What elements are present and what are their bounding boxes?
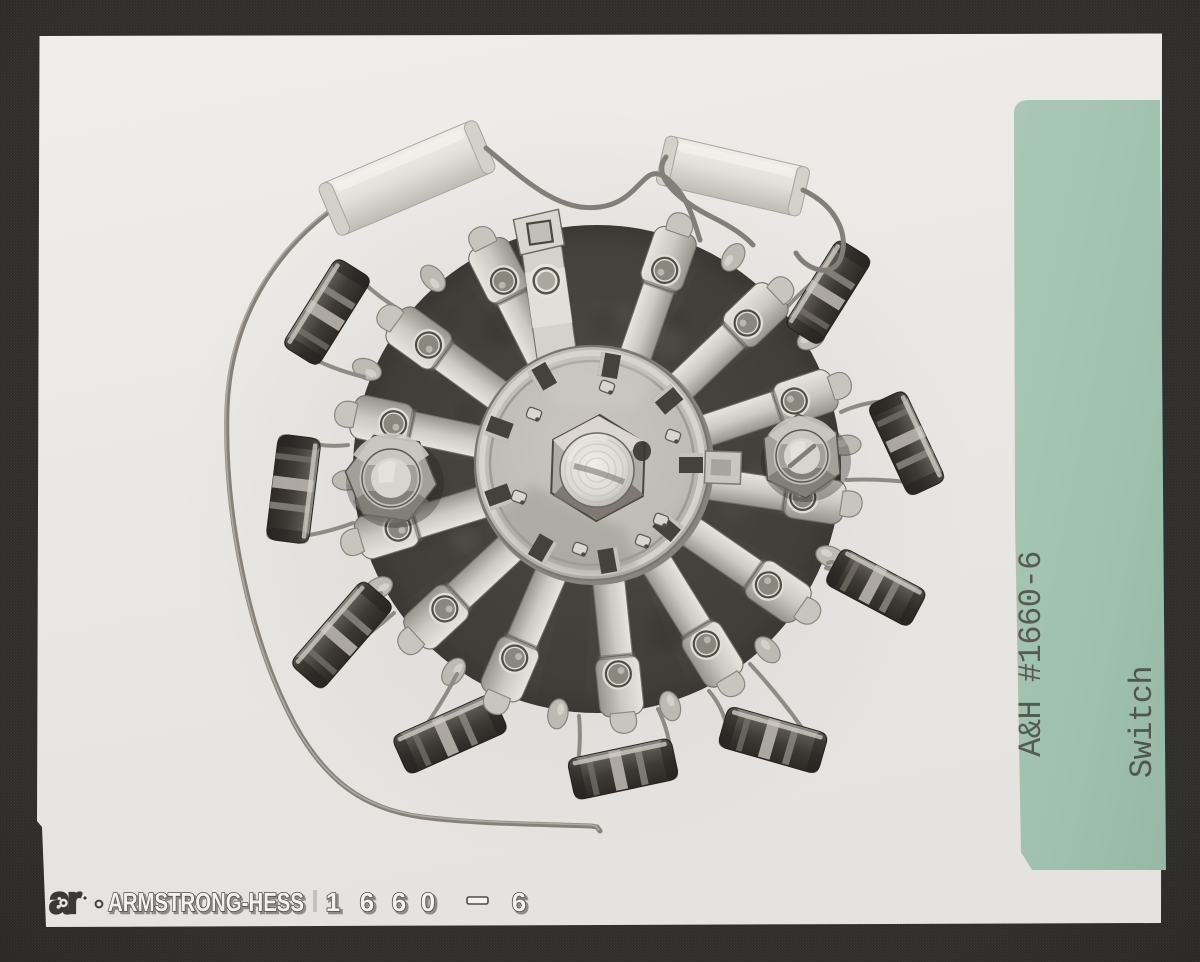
svg-text:A&H #1660-6: A&H #1660-6 — [1013, 551, 1050, 757]
svg-text:ARMSTRONG-HESS: ARMSTRONG-HESS — [108, 887, 304, 917]
svg-text:Switch: Switch — [1124, 666, 1161, 778]
